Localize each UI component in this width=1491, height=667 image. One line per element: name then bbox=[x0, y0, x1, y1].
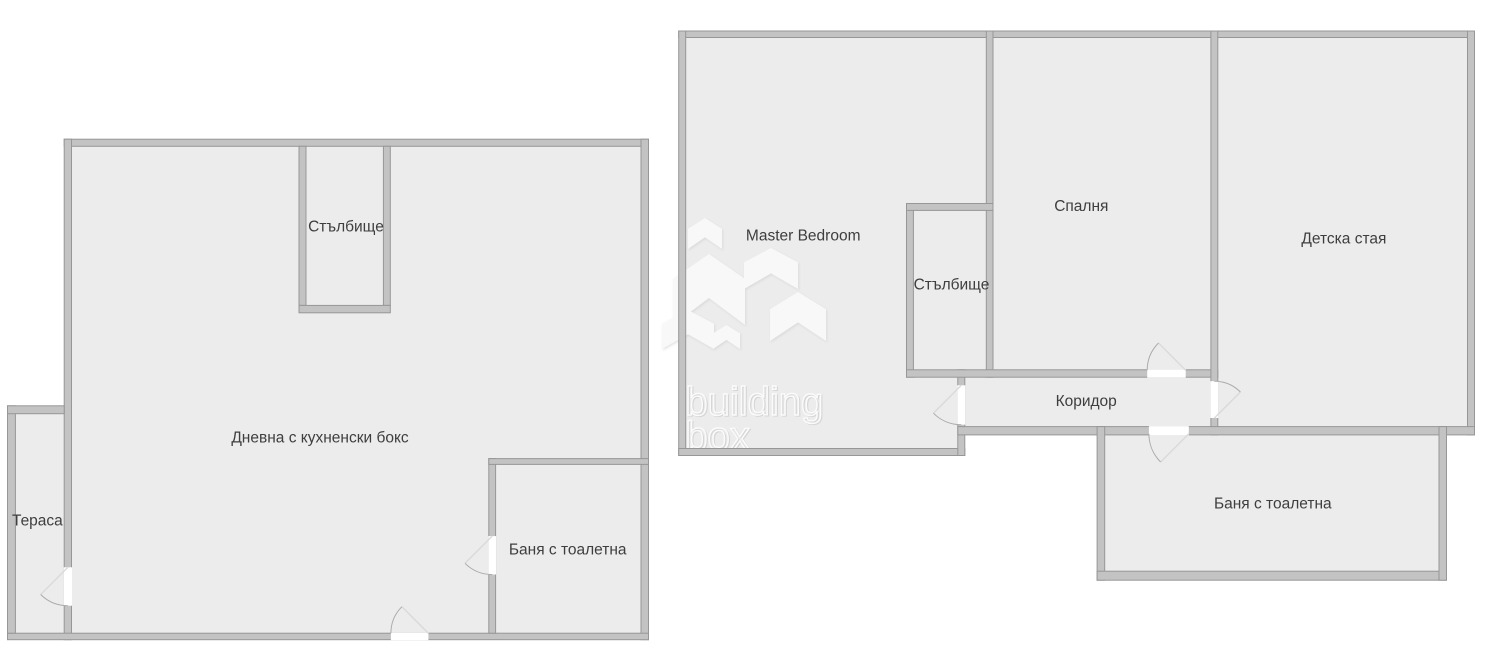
svg-text:Спалня: Спалня bbox=[1054, 198, 1108, 215]
svg-text:Баня с тоалетна: Баня с тоалетна bbox=[1214, 495, 1332, 512]
svg-text:Тераса: Тераса bbox=[12, 513, 63, 530]
svg-text:Дневна с кухненски бокс: Дневна с кухненски бокс bbox=[231, 429, 409, 446]
svg-text:Master Bedroom: Master Bedroom bbox=[746, 228, 861, 245]
svg-text:Коридор: Коридор bbox=[1056, 393, 1117, 410]
svg-text:Стълбище: Стълбище bbox=[914, 276, 990, 293]
svg-text:Детска стая: Детска стая bbox=[1301, 231, 1386, 248]
svg-text:Стълбище: Стълбище bbox=[308, 219, 384, 236]
svg-text:Баня с тоалетна: Баня с тоалетна bbox=[509, 541, 627, 558]
